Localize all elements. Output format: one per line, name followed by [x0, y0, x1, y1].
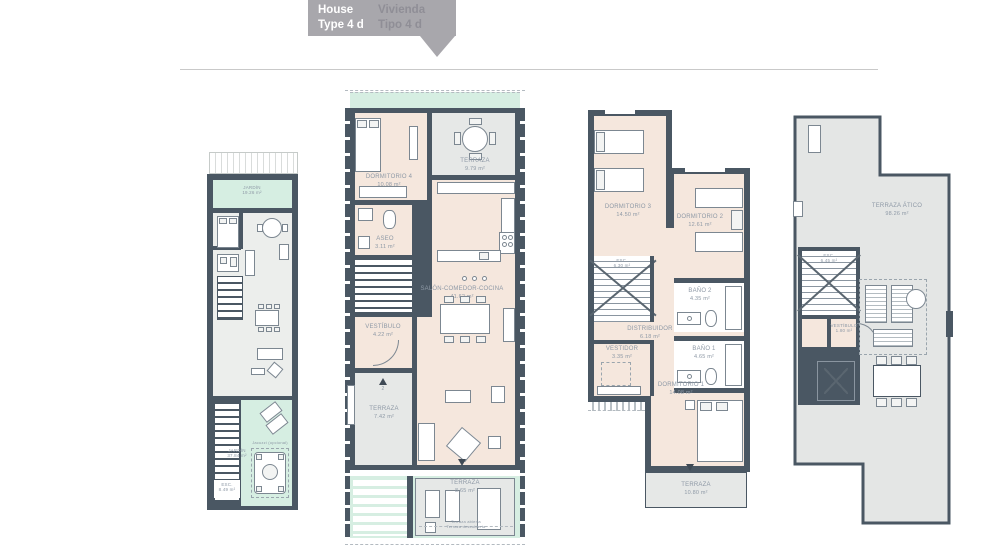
chair [906, 356, 917, 365]
title-es-line1: Vivienda [378, 3, 425, 18]
room-label-jardin-top: JARDÍN 19.26 m² [222, 185, 282, 196]
room-label: DORMITORIO 1 [651, 382, 711, 390]
room-area: 4.22 m² [357, 332, 409, 339]
room-label: TERRAZA ÁTICO [861, 203, 933, 211]
jacuzzi-corner [256, 486, 262, 492]
note-text: Terraza descubierta [437, 525, 495, 530]
room-area: 19.26 m² [222, 190, 282, 195]
chimney [808, 125, 821, 153]
toilet [230, 257, 237, 267]
round-table [262, 218, 282, 238]
vestibulo-cell [802, 319, 827, 347]
chair [489, 132, 496, 145]
room-label: SALÓN-COMEDOR-COCINA [417, 286, 507, 294]
faucet [687, 374, 692, 379]
wall-segment [650, 256, 654, 322]
chair [876, 356, 887, 365]
bathtub [725, 286, 742, 330]
jacuzzi-corner [278, 486, 284, 492]
title-en-line2: Type 4 d [318, 18, 364, 33]
room-area: 7.42 m² [359, 414, 409, 421]
kitchen-unit [279, 244, 289, 260]
room-label-esc: ESC. 6.30 m² [607, 258, 637, 269]
room-label: DORMITORIO 2 [673, 214, 727, 222]
room-area: 8.65 m² [440, 488, 490, 495]
deck-steps [353, 480, 407, 536]
toilet [705, 310, 717, 327]
chair [476, 296, 486, 303]
bed-single [695, 232, 743, 252]
chair [258, 327, 264, 332]
room-label-vestidor: VESTIDOR 3.35 m² [597, 346, 647, 360]
title-es-line2: Tipo 4 d [378, 18, 425, 33]
entry-arrow-icon [686, 464, 694, 471]
plan-ground-overview: JARDÍN 19.26 m² ESC. [205, 152, 300, 518]
room-area: 98.26 m² [861, 211, 933, 218]
stairs [217, 276, 243, 320]
chair [876, 398, 887, 407]
room-label-terraza-bottom: TERRAZA 8.65 m² [440, 480, 490, 494]
room-area: 8.49 m² [214, 487, 240, 492]
party-wall-hatch [588, 402, 645, 411]
room-area: 4.35 m² [677, 296, 723, 303]
pillow [219, 218, 227, 224]
round-table [462, 126, 488, 152]
stairs [355, 260, 412, 312]
dresser [597, 386, 641, 395]
burner [508, 242, 513, 247]
room-label-dormitorio2: DORMITORIO 2 12.61 m² [673, 214, 727, 228]
room-label-dormitorio4: DORMITORIO 4 10.08 m² [357, 174, 421, 188]
room-label-terraza-atico: TERRAZA ÁTICO 98.26 m² [861, 203, 933, 217]
wall-segment [674, 336, 744, 341]
chair [906, 398, 917, 407]
room-area: 14.08 m² [651, 390, 711, 397]
room-area: 9.79 m² [453, 166, 497, 173]
side-table [425, 522, 436, 533]
round-table [906, 289, 926, 309]
shower [358, 208, 373, 221]
wall-nub [946, 311, 953, 337]
lounger [873, 329, 913, 347]
plan-atico: TERRAZA ÁTICO 98.26 m² ESC. 6.45 m² VEST… [793, 115, 953, 527]
room-label: VESTÍBULO [357, 324, 409, 332]
lounger [865, 285, 887, 323]
entry-number: 2 [373, 386, 393, 392]
toilet [383, 210, 396, 229]
chair [444, 296, 454, 303]
title-banner: House Type 4 d Vivienda Tipo 4 d [308, 0, 456, 36]
chair [460, 336, 470, 343]
skylight [823, 367, 849, 395]
chair [460, 296, 470, 303]
chair [444, 336, 454, 343]
faucet [687, 316, 692, 321]
bed-single [695, 188, 743, 208]
nightstand [685, 400, 695, 410]
room-area: 6.30 m² [607, 263, 637, 268]
wall-notch [793, 201, 803, 217]
room-label-vestibulo: VESTÍBULO 4.22 m² [357, 324, 409, 338]
room-label: TERRAZA [440, 480, 490, 488]
burner [508, 235, 513, 240]
bar-stool [462, 276, 467, 281]
wardrobe-dashed [601, 362, 631, 386]
bar-stool [482, 276, 487, 281]
plan-first-floor: DORMITORIO 3 14.50 m² DORMITORIO 2 12.61… [585, 110, 755, 510]
room-label: BAÑO 2 [677, 288, 723, 296]
pillow [716, 402, 728, 411]
room-label: ASEO [363, 236, 407, 244]
garden-strip-top [350, 92, 520, 109]
side-table [488, 436, 501, 449]
bathtub [725, 344, 742, 386]
title-spanish: Vivienda Tipo 4 d [378, 3, 425, 33]
jacuzzi-tub [262, 464, 278, 480]
wardrobe [245, 250, 255, 276]
pillow [369, 120, 379, 128]
chair [282, 224, 288, 232]
note-text: Jacuzzi (opcional) [249, 440, 291, 445]
room-area: 3.35 m² [597, 354, 647, 361]
chair [257, 224, 263, 232]
room-label-dormitorio3: DORMITORIO 3 14.50 m² [600, 204, 656, 218]
pillow [596, 170, 605, 190]
armchair [491, 386, 505, 403]
header-divider [180, 69, 878, 70]
burner [502, 235, 507, 240]
chair [266, 327, 272, 332]
room-label-vestibulo: VESTÍBULO 1.80 m² [829, 323, 859, 334]
jacuzzi-note: Jacuzzi (opcional) [249, 440, 291, 445]
room-label: TERRAZA [359, 406, 409, 414]
room-label: VESTIDOR [597, 346, 647, 354]
wall-segment [407, 476, 413, 538]
burner [502, 242, 507, 247]
room-label: DISTRIBUIDOR [627, 326, 673, 334]
room-label-terraza-top: TERRAZA 9.79 m² [453, 158, 497, 172]
pergola-slats [209, 152, 298, 174]
sofa [257, 348, 283, 360]
dining-table [873, 365, 921, 397]
party-wall-right [520, 108, 525, 538]
wall-segment [594, 340, 654, 344]
open-terrace-note: Terraza abierta Terraza descubierta [437, 520, 495, 529]
chair [258, 304, 264, 309]
planter [347, 385, 355, 425]
room-label-distribuidor: DISTRIBUIDOR 6.18 m² [627, 326, 673, 340]
desk [409, 126, 418, 160]
wall-segment [674, 278, 744, 283]
bar-stool [472, 276, 477, 281]
room-label-terraza-left: TERRAZA 7.42 m² [359, 406, 409, 420]
entry-arrow-icon [379, 378, 387, 385]
room-label: DORMITORIO 3 [600, 204, 656, 212]
kitchen-peninsula [437, 250, 501, 262]
room-label-bano2: BAÑO 2 4.35 m² [677, 288, 723, 302]
plan-ground-floor: DORMITORIO 4 10.08 m² TERRAZA 9.79 m² SA… [345, 90, 525, 547]
lounger [425, 490, 440, 518]
kitchen-counter-top [437, 182, 515, 194]
lounger [445, 490, 460, 522]
coffee-table [445, 390, 471, 403]
room-area: 6.45 m² [815, 258, 843, 263]
chair [454, 132, 461, 145]
kitchen-sink [479, 252, 489, 260]
room-area: 4.65 m² [681, 354, 727, 361]
room-label: TERRAZA [671, 482, 721, 490]
pillow [700, 402, 712, 411]
title-en-line1: House [318, 3, 364, 18]
pillow [229, 218, 237, 224]
pillow [596, 132, 605, 152]
chair [891, 356, 902, 365]
room-label-bano1: BAÑO 1 4.65 m² [681, 346, 727, 360]
room-label-aseo: ASEO 3.11 m² [363, 236, 407, 250]
room-area: 1.80 m² [829, 328, 859, 333]
room-area: 14.50 m² [600, 212, 656, 219]
plot-dashed-line [345, 90, 525, 91]
pillow [357, 120, 367, 128]
room-label: TERRAZA [453, 158, 497, 166]
sideboard [503, 308, 515, 342]
chair [274, 304, 280, 309]
chair [469, 118, 482, 125]
window [605, 110, 635, 114]
wall-segment [239, 213, 243, 249]
room-area: 3.11 m² [363, 244, 407, 251]
room-area: 10.80 m² [671, 490, 721, 497]
entry-arrow-icon [458, 459, 466, 466]
sink [220, 257, 227, 264]
tv-unit [251, 368, 265, 375]
dining-table [255, 310, 279, 326]
nightstand [731, 210, 743, 230]
jacuzzi-corner [256, 454, 262, 460]
floorplan-sheet: House Type 4 d Vivienda Tipo 4 d JARDÍN … [0, 0, 1007, 550]
room-label: BAÑO 1 [681, 346, 727, 354]
room-label-dormitorio1: DORMITORIO 1 14.08 m² [651, 382, 711, 396]
room-area: 12.61 m² [673, 222, 727, 229]
jacuzzi-corner [278, 454, 284, 460]
room-label-terraza: TERRAZA 10.80 m² [671, 482, 721, 496]
title-english: House Type 4 d [318, 3, 364, 33]
dining-table [440, 304, 490, 334]
window [685, 168, 725, 172]
plot-dashed-line [345, 544, 525, 545]
room-area: 10.08 m² [357, 182, 421, 189]
room-label-esc: ESC. 6.45 m² [815, 253, 843, 264]
room-label: DORMITORIO 4 [357, 174, 421, 182]
chair [274, 327, 280, 332]
room-label-esc: ESC. 8.49 m² [214, 482, 240, 493]
chair [891, 398, 902, 407]
chair [476, 336, 486, 343]
chaise-lounge [418, 423, 435, 461]
number-text: 2 [373, 386, 393, 392]
banner-pointer-icon [420, 36, 455, 57]
chair [266, 304, 272, 309]
